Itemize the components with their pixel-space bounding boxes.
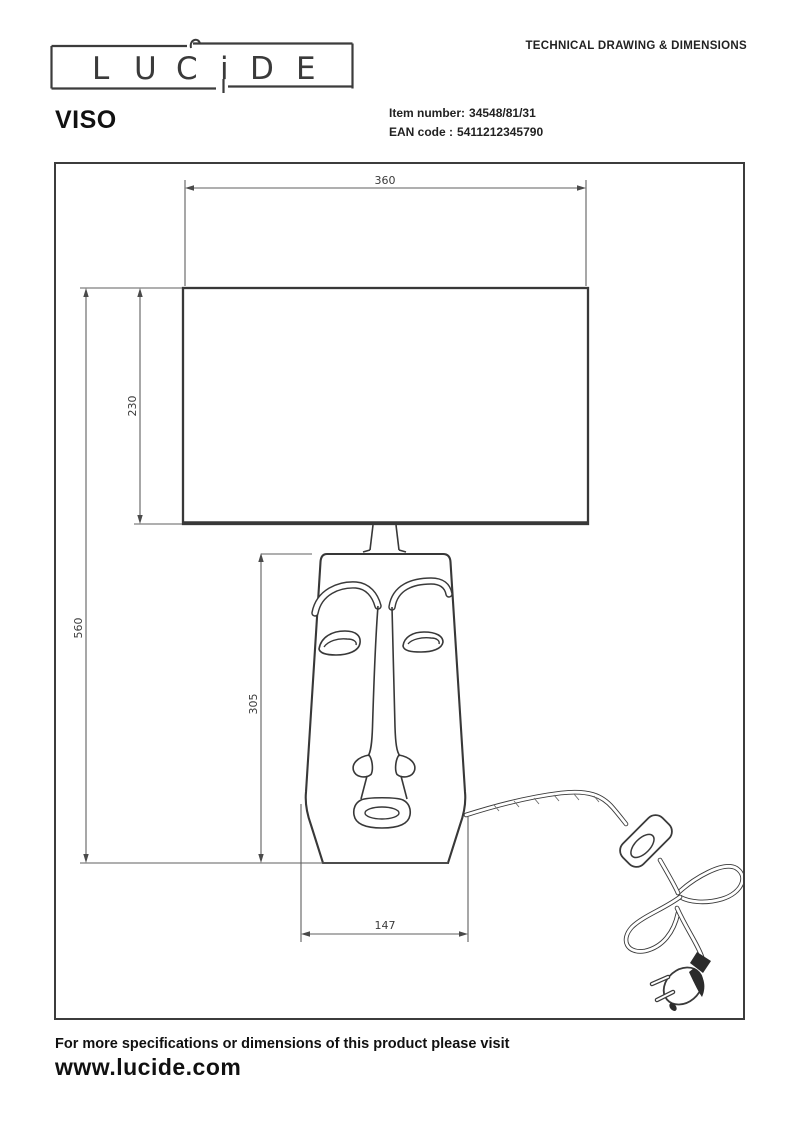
logo-letter: D bbox=[250, 51, 274, 87]
footer-website: www.lucide.com bbox=[55, 1054, 241, 1081]
face-nose-right-line bbox=[392, 607, 400, 756]
dimension-body-height: 305 bbox=[247, 553, 312, 863]
item-number-row: Item number:34548/81/31 bbox=[389, 104, 547, 123]
dim-label-base-width: 147 bbox=[375, 919, 396, 932]
lamp-neck bbox=[363, 525, 406, 552]
power-plug bbox=[652, 952, 711, 1012]
technical-drawing: 360 230 560 bbox=[56, 164, 743, 1018]
item-number-value: 34548/81/31 bbox=[469, 106, 536, 120]
dimension-base-width: 147 bbox=[301, 804, 468, 942]
face-left-eye bbox=[319, 631, 360, 655]
ean-code-row: EAN code :5411212345790 bbox=[389, 123, 547, 142]
dim-label-total-height: 560 bbox=[72, 618, 85, 639]
dimension-shade-width: 360 bbox=[185, 174, 586, 286]
drawing-border: 360 230 560 bbox=[54, 162, 745, 1020]
power-cord bbox=[466, 792, 743, 1012]
face-left-nostril bbox=[353, 755, 372, 777]
lamp-body bbox=[306, 554, 466, 863]
face-nose-base bbox=[354, 798, 410, 828]
dim-label-body-height: 305 bbox=[247, 694, 260, 715]
face-art bbox=[315, 581, 449, 828]
product-codes: Item number:34548/81/31 EAN code :541121… bbox=[389, 104, 547, 142]
face-right-nostril bbox=[396, 755, 415, 777]
ean-code-value: 5411212345790 bbox=[457, 125, 543, 139]
logo-letter: L bbox=[92, 51, 110, 87]
dimension-shade-height: 230 bbox=[126, 288, 182, 524]
dim-label-shade-width: 360 bbox=[375, 174, 396, 187]
lucide-logo: L U C i D E bbox=[50, 36, 355, 100]
logo-letter: U bbox=[134, 51, 157, 87]
logo-letter: E bbox=[296, 51, 316, 87]
doc-title: TECHNICAL DRAWING & DIMENSIONS bbox=[525, 40, 747, 52]
spec-sheet-page: L U C i D E TECHNICAL DRAWING & DIMENSIO… bbox=[0, 0, 800, 1133]
dimension-total-height: 560 bbox=[72, 288, 448, 863]
face-nose-left-line bbox=[368, 606, 378, 756]
dim-label-shade-height: 230 bbox=[126, 396, 139, 417]
item-number-label: Item number: bbox=[389, 106, 465, 120]
product-name: VISO bbox=[55, 106, 117, 135]
logo-letter: C bbox=[176, 51, 198, 87]
footer-note: For more specifications or dimensions of… bbox=[55, 1036, 509, 1052]
ean-code-label: EAN code : bbox=[389, 125, 453, 139]
lamp-shade bbox=[183, 288, 588, 524]
